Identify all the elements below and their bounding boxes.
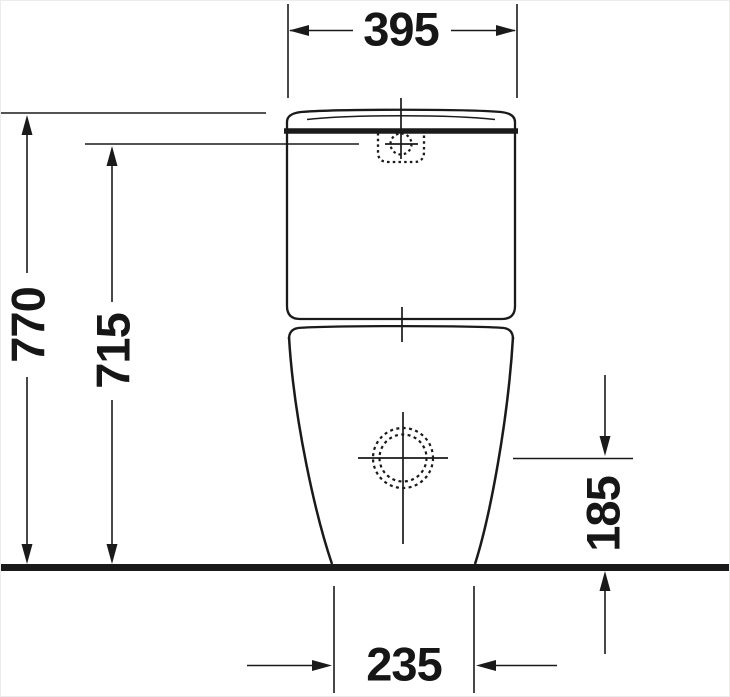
arrow-right-icon: [496, 25, 516, 36]
arrow-up-icon: [107, 146, 118, 166]
dim-label-height-button: 715: [90, 313, 137, 388]
arrow-up-icon: [600, 571, 611, 591]
arrow-left-icon: [476, 660, 496, 671]
arrow-down-icon: [22, 544, 33, 564]
dim-label-width-base: 235: [366, 641, 441, 688]
arrow-up-icon: [22, 115, 33, 135]
cistern-tank: [287, 133, 515, 319]
arrow-right-icon: [312, 660, 332, 671]
arrow-left-icon: [289, 25, 309, 36]
bowl: [289, 326, 513, 564]
dim-label-width-top: 395: [363, 6, 438, 53]
arrow-down-icon: [600, 436, 611, 456]
dim-label-height-total: 770: [5, 287, 52, 362]
outlet-mark: [358, 412, 448, 544]
technical-drawing-canvas: 395 770 715 185 235: [0, 0, 730, 697]
arrow-down-icon: [107, 544, 118, 564]
dim-label-height-outlet: 185: [580, 476, 627, 551]
